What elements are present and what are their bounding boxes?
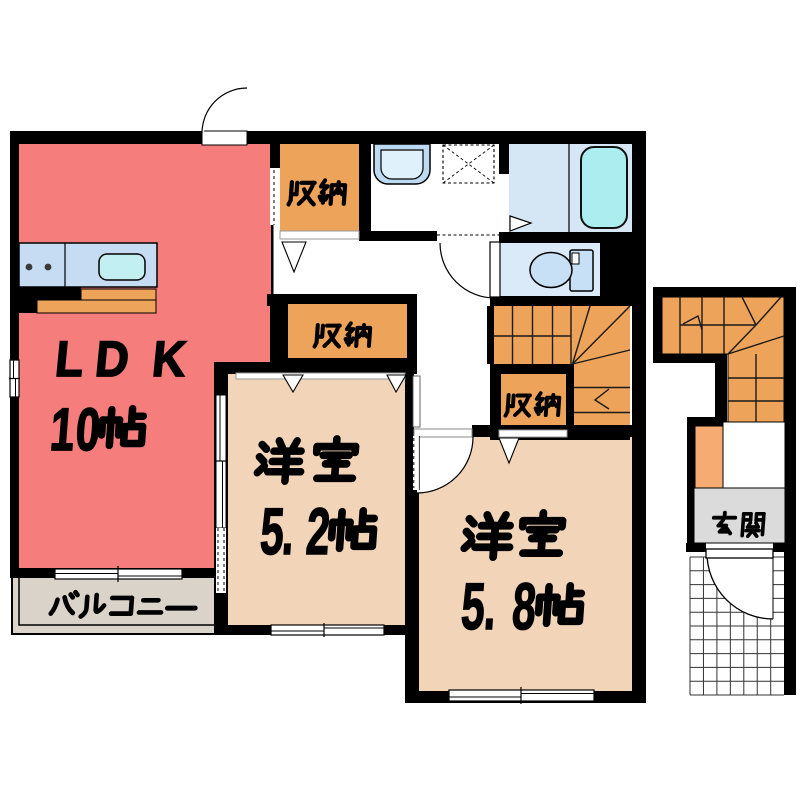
svg-text:D: D [93,331,132,387]
svg-text:10: 10 [48,397,104,463]
svg-text:8: 8 [510,570,538,644]
svg-text:K: K [150,331,189,387]
svg-text:2: 2 [304,495,332,569]
svg-text:L: L [53,331,87,387]
